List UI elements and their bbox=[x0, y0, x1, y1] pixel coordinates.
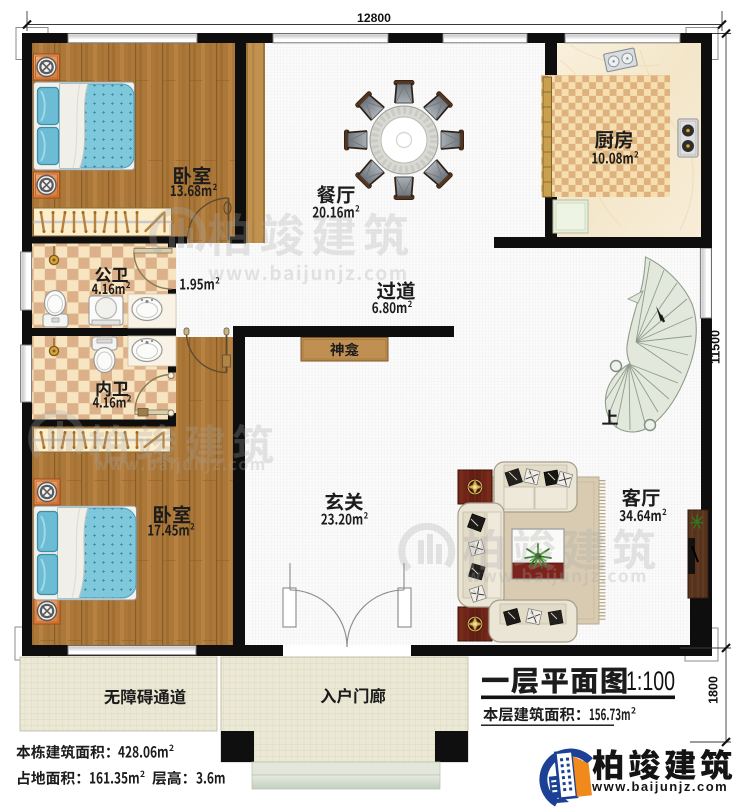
svg-text:1800: 1800 bbox=[707, 676, 721, 704]
svg-text:www.baijunjz.com: www.baijunjz.com bbox=[591, 779, 728, 794]
svg-text:12800: 12800 bbox=[357, 11, 391, 25]
svg-text:1:100: 1:100 bbox=[626, 666, 675, 696]
svg-text:11500: 11500 bbox=[709, 330, 723, 364]
